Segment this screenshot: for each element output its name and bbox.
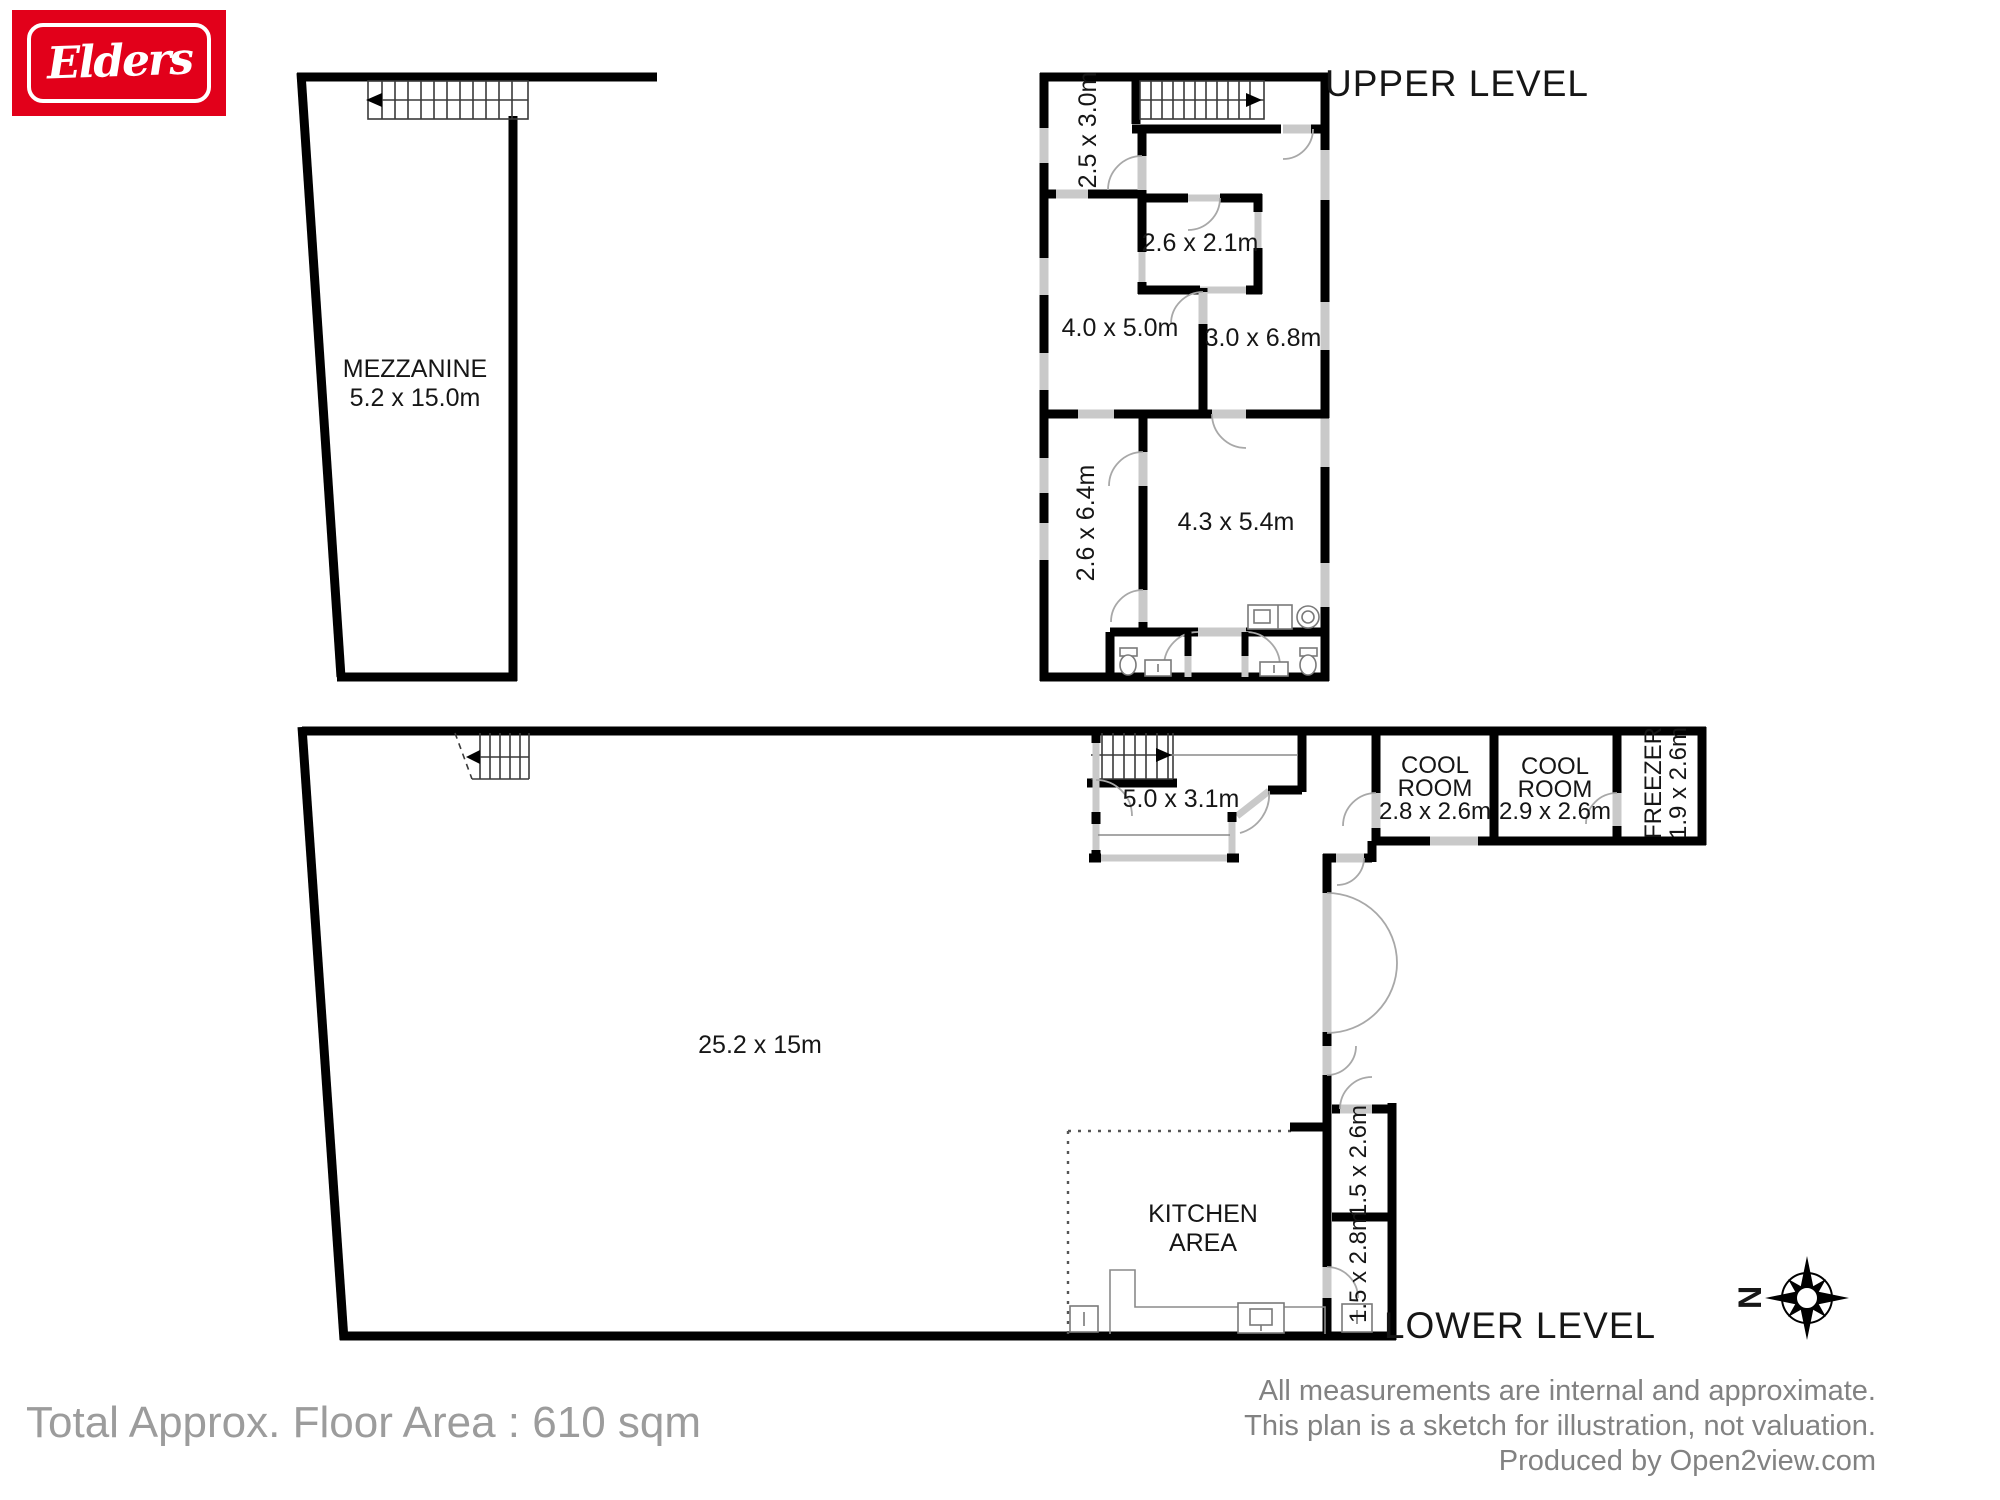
office-label: 5.0 x 3.1m — [1123, 785, 1240, 813]
upper-room-40x50-label: 4.0 x 5.0m — [1062, 314, 1179, 342]
compass-north-label: N — [1732, 1286, 1768, 1309]
compass-rose-icon: N — [1732, 1256, 1849, 1340]
freezer-dims: 1.9 x 2.6m — [1665, 727, 1692, 839]
upper-room-26x64-label: 2.6 x 6.4m — [1072, 465, 1100, 582]
disclaimer-line-1: All measurements are internal and approx… — [1244, 1374, 1876, 1409]
total-floor-area-text: Total Approx. Floor Area : 610 sqm — [26, 1398, 701, 1448]
disclaimer-block: All measurements are internal and approx… — [1244, 1374, 1876, 1479]
kitchen-label-line2: AREA — [1169, 1229, 1237, 1257]
lower-level-plan: 25.2 x 15m 5.0 x 3.1m COOL ROOM 2.8 x 2.… — [302, 727, 1706, 1346]
upper-room-43x54-label: 4.3 x 5.4m — [1178, 508, 1295, 536]
upper-level-title: UPPER LEVEL — [1325, 63, 1589, 104]
floorplan-drawing: MEZZANINE 5.2 x 15.0m — [0, 0, 2000, 1500]
lower-level-title: LOWER LEVEL — [1384, 1305, 1656, 1346]
upper-room-25x30-label: 2.5 x 3.0m — [1074, 72, 1102, 189]
lower-main-area-label: 25.2 x 15m — [698, 1031, 822, 1059]
lower-right-staircase-icon — [1091, 733, 1298, 779]
mezzanine-dims: 5.2 x 15.0m — [350, 384, 481, 412]
upper-staircase-icon — [1136, 77, 1264, 124]
mezzanine-plan: MEZZANINE 5.2 x 15.0m — [297, 73, 657, 681]
store2-label: 1.5 x 2.8m — [1345, 1211, 1372, 1323]
store1-label: 1.5 x 2.6m — [1345, 1105, 1372, 1217]
upper-room-30x68-label: 3.0 x 6.8m — [1205, 324, 1322, 352]
cool-room1-dims: 2.8 x 2.6m — [1379, 798, 1491, 825]
mezzanine-staircase-icon — [366, 81, 528, 119]
disclaimer-line-3: Produced by Open2view.com — [1244, 1444, 1876, 1479]
kitchen-label-line1: KITCHEN — [1148, 1200, 1258, 1228]
cool-room2-dims: 2.9 x 2.6m — [1499, 798, 1611, 825]
upper-level-plan: 2.5 x 3.0m 2.6 x 2.1m 4.0 x 5.0m 3.0 x 6… — [1040, 63, 1589, 681]
lower-left-staircase-icon — [455, 733, 529, 779]
floorplan-page: Elders MEZZANINE 5.2 x 15.0m — [0, 0, 2000, 1500]
disclaimer-line-2: This plan is a sketch for illustration, … — [1244, 1409, 1876, 1444]
upper-room-26x21-label: 2.6 x 2.1m — [1142, 229, 1259, 257]
bathroom-fixtures-icon — [1120, 605, 1319, 676]
mezzanine-title: MEZZANINE — [343, 355, 487, 383]
freezer-label: FREEZER — [1640, 727, 1667, 839]
